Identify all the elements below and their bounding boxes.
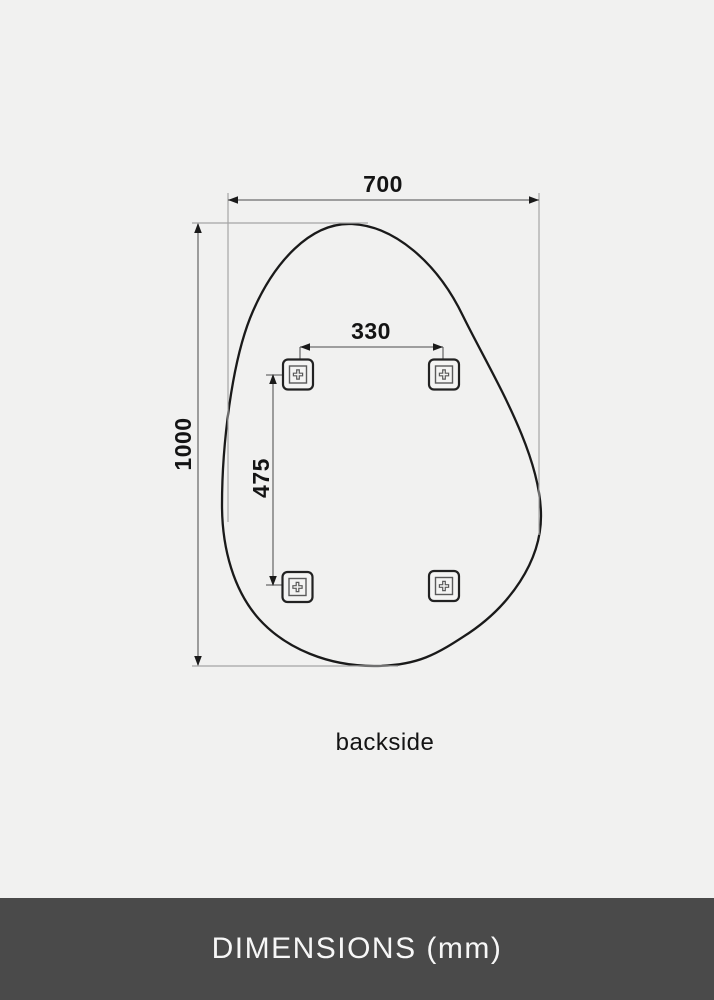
backside-caption: backside [336, 729, 435, 756]
mounting-bracket-top-right [429, 360, 459, 390]
height-dimension: 1000 [170, 223, 202, 666]
footer-title: DIMENSIONS (mm) [212, 932, 503, 966]
bracket-horizontal-arrow-right-icon [433, 343, 443, 351]
width-dimension: 700 [228, 171, 539, 204]
mounting-bracket-top-left [283, 360, 313, 390]
dimension-diagram-svg: 700 1000 330 [0, 0, 714, 898]
width-arrow-left-icon [228, 196, 238, 204]
footer: DIMENSIONS (mm) [0, 898, 714, 1000]
width-arrow-right-icon [529, 196, 539, 204]
bracket-outer-square [429, 360, 459, 390]
bracket-outer-square [429, 571, 459, 601]
height-arrow-bottom-icon [194, 656, 202, 666]
diagram-area: 700 1000 330 [0, 0, 714, 898]
bracket-horizontal-dimension: 330 [300, 318, 443, 359]
bracket-outer-square [283, 572, 313, 602]
height-dimension-label: 1000 [170, 417, 196, 470]
mounting-bracket-bottom-right [429, 571, 459, 601]
bracket-horizontal-dimension-label: 330 [351, 318, 391, 344]
width-dimension-label: 700 [363, 171, 403, 197]
mounting-bracket-bottom-left [283, 572, 313, 602]
product-dimension-image: 700 1000 330 [0, 0, 714, 1000]
bracket-horizontal-arrow-left-icon [300, 343, 310, 351]
extension-lines [192, 193, 539, 666]
bracket-vertical-dimension: 475 [248, 374, 283, 586]
bracket-outer-square [283, 360, 313, 390]
bracket-vertical-dimension-label: 475 [248, 458, 274, 498]
height-arrow-top-icon [194, 223, 202, 233]
mirror-outline [222, 224, 541, 666]
